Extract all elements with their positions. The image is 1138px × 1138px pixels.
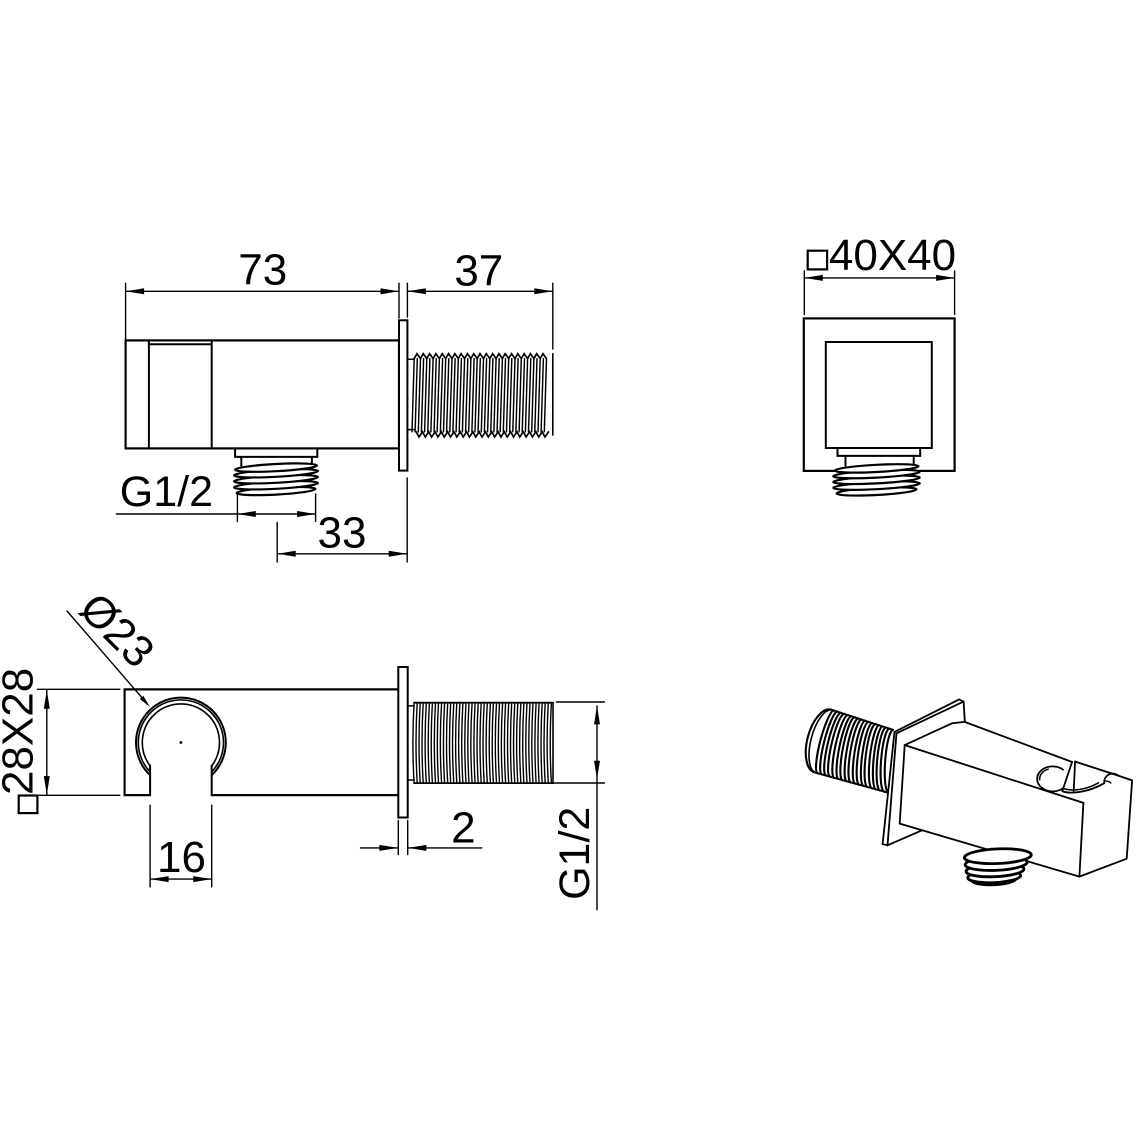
svg-text:40X40: 40X40	[829, 231, 956, 280]
svg-text:2: 2	[451, 804, 475, 853]
svg-text:G1/2: G1/2	[551, 807, 599, 900]
svg-text:73: 73	[238, 246, 287, 295]
svg-text:28X28: 28X28	[0, 668, 43, 795]
svg-text:G1/2: G1/2	[120, 468, 213, 516]
svg-text:37: 37	[454, 246, 503, 295]
svg-text:33: 33	[318, 508, 367, 557]
svg-text:16: 16	[157, 833, 206, 882]
